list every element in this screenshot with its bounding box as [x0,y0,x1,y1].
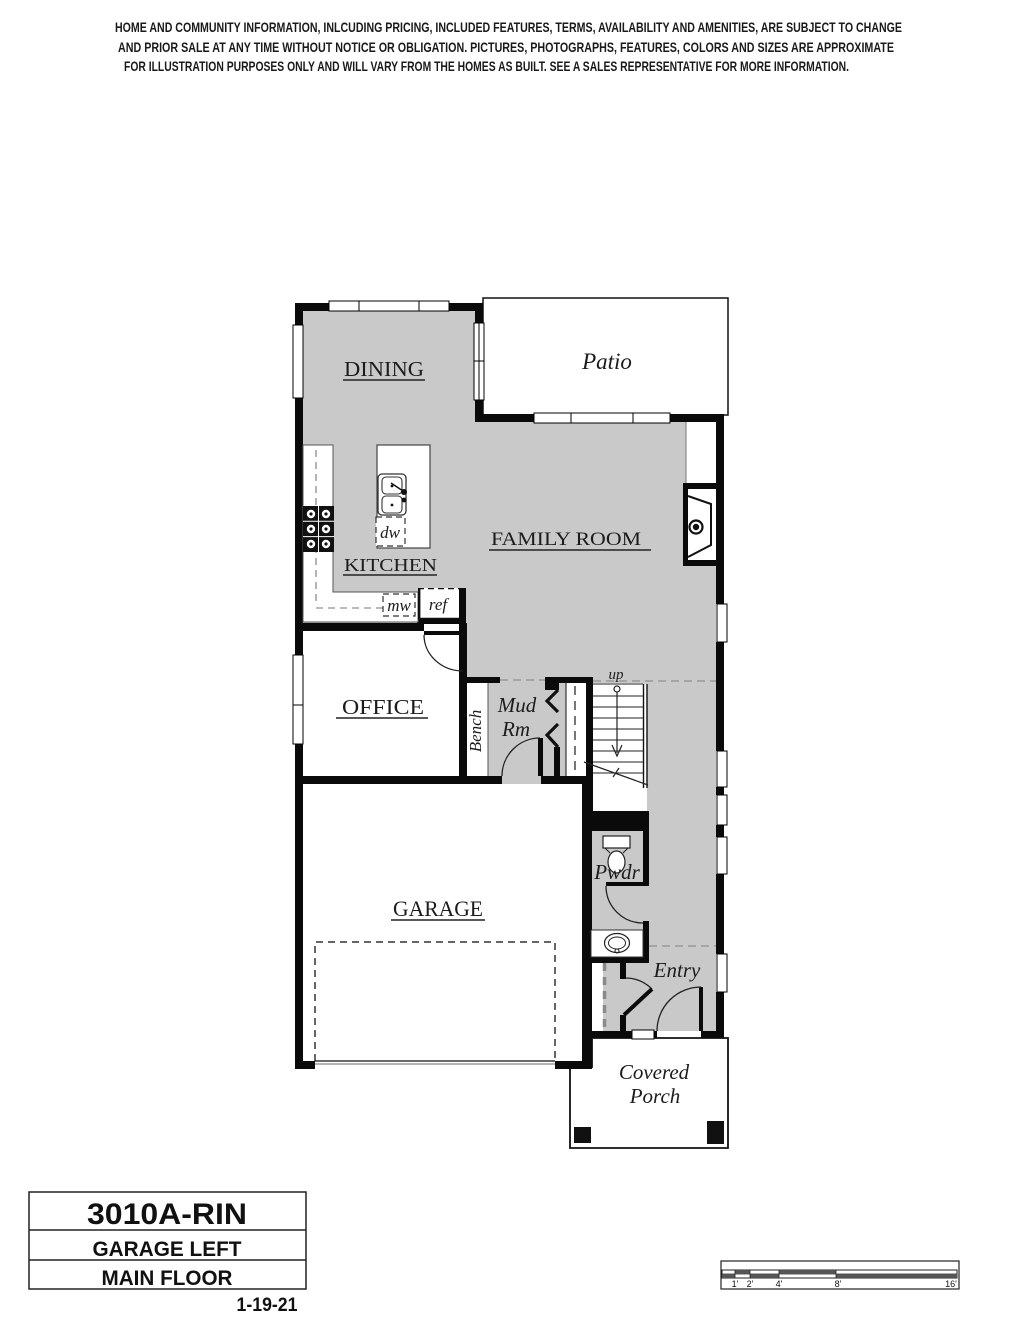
svg-text:KITCHEN: KITCHEN [344,555,437,575]
svg-text:2': 2' [747,1279,754,1289]
svg-text:ref: ref [429,595,450,614]
svg-text:MAIN FLOOR: MAIN FLOOR [102,1267,233,1290]
svg-text:3010A-RIN: 3010A-RIN [87,1198,247,1231]
svg-text:Porch: Porch [629,1084,681,1108]
svg-text:AND PRIOR SALE AT ANY TIME WIT: AND PRIOR SALE AT ANY TIME WITHOUT NOTIC… [118,39,894,55]
svg-text:8': 8' [835,1279,842,1289]
svg-text:OFFICE: OFFICE [342,695,424,719]
svg-text:GARAGE: GARAGE [393,896,483,921]
svg-text:DINING: DINING [344,357,424,381]
svg-text:1': 1' [732,1279,739,1289]
svg-text:Rm: Rm [501,717,530,741]
svg-text:dw: dw [380,523,401,542]
svg-text:mw: mw [387,596,411,615]
svg-text:GARAGE LEFT: GARAGE LEFT [93,1238,242,1261]
svg-text:Bench: Bench [466,710,485,752]
svg-text:FAMILY ROOM: FAMILY ROOM [491,529,641,550]
svg-text:up: up [609,667,625,683]
svg-text:1-19-21: 1-19-21 [237,1295,298,1316]
svg-text:Entry: Entry [653,958,701,982]
svg-text:FOR ILLUSTRATION PURPOSES ONLY: FOR ILLUSTRATION PURPOSES ONLY AND WILL … [124,58,849,74]
svg-text:Covered: Covered [619,1060,690,1084]
svg-text:Mud: Mud [497,693,537,717]
svg-text:4': 4' [776,1279,783,1289]
svg-text:Pwdr: Pwdr [593,860,640,884]
svg-text:16': 16' [945,1279,957,1289]
svg-text:HOME AND COMMUNITY INFORMATION: HOME AND COMMUNITY INFORMATION, INLCUDIN… [115,19,902,35]
svg-text:Patio: Patio [581,349,632,374]
